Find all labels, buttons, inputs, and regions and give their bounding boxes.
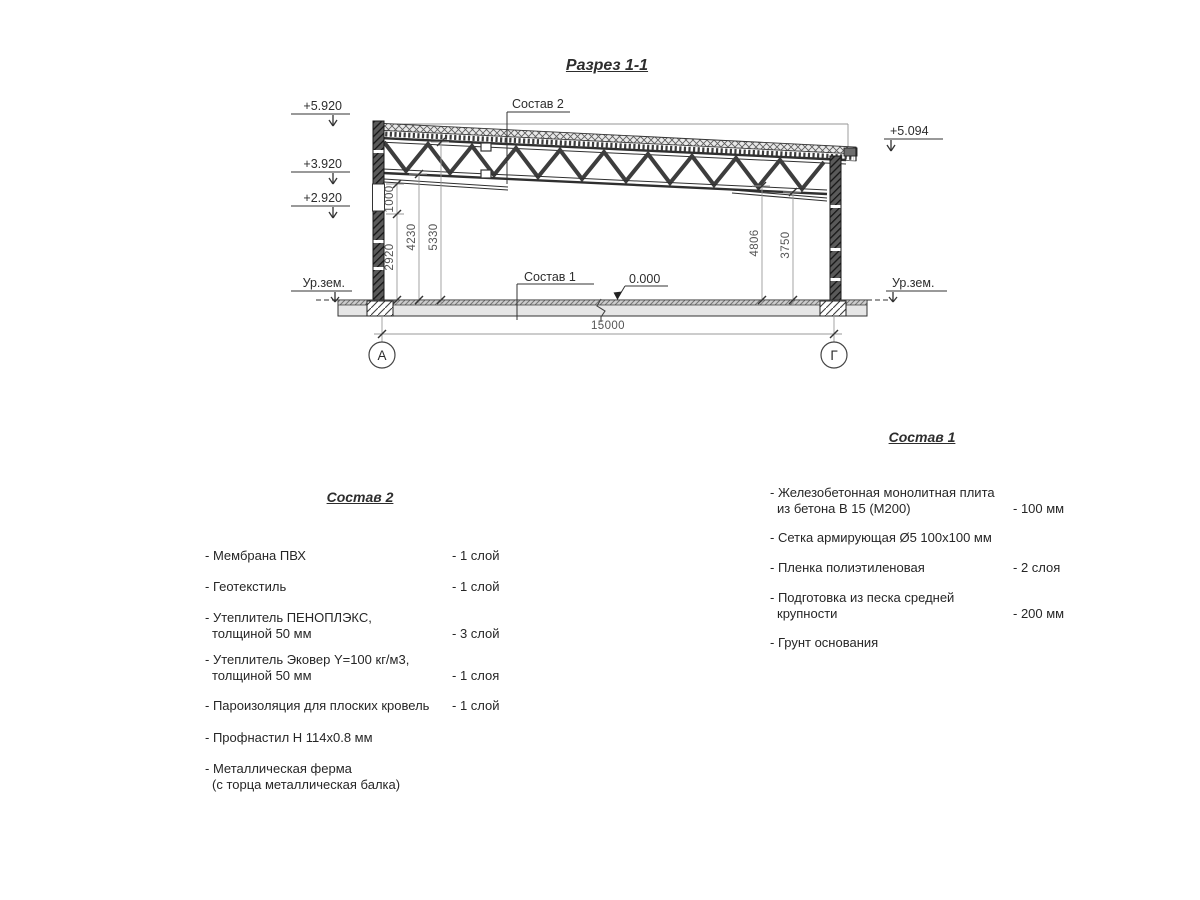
sostav2-heading: Состав 2 (205, 489, 515, 505)
truss-gusset-plate (481, 143, 491, 151)
axis-bubble-a: А (369, 342, 395, 368)
svg-text:+3.920: +3.920 (303, 157, 342, 171)
sostav1-list: - Железобетонная монолитная плита из бет… (770, 485, 1170, 651)
list-item: - Грунт основания (770, 635, 1170, 651)
truss-gusset-plate (481, 170, 491, 178)
drawing-sheet: Разрез 1-1 (0, 0, 1200, 900)
section-title: Разрез 1-1 (457, 57, 757, 75)
svg-text:Состав 2: Состав 2 (512, 97, 564, 111)
list-item: - Пленка полиэтиленовая - 2 слоя (770, 560, 1170, 576)
wall-left-opening (373, 184, 385, 211)
svg-text:4806: 4806 (749, 229, 761, 256)
svg-text:2920: 2920 (384, 243, 396, 270)
ground-level-label-left: Ур.зем. (291, 276, 352, 302)
svg-text:0.000: 0.000 (629, 272, 660, 286)
list-item: - Утеплитель Эковер Y=100 кг/м3, толщино… (205, 652, 625, 684)
floor-slab (316, 299, 893, 322)
wall-right (830, 156, 841, 300)
roof-fascia (844, 148, 857, 156)
wall-left (373, 121, 385, 300)
ground-level-label-right: Ур.зем. (886, 276, 947, 302)
elevation-mark-2920: +2.920 (291, 191, 350, 218)
list-item: - Железобетонная монолитная плита из бет… (770, 485, 1170, 517)
foundation-left (367, 301, 393, 316)
elevation-mark-3920: +3.920 (291, 157, 350, 184)
list-item: - Профнастил Н 114х0.8 мм (205, 730, 625, 746)
svg-text:Состав 1: Состав 1 (524, 270, 576, 284)
svg-text:А: А (377, 348, 386, 363)
list-item: - Геотекстиль - 1 слой (205, 579, 625, 595)
sostav1-heading: Состав 1 (770, 429, 1074, 445)
svg-text:Ур.зем.: Ур.зем. (892, 276, 934, 290)
svg-text:Ур.зем.: Ур.зем. (303, 276, 345, 290)
list-item: - Утеплитель ПЕНОПЛЭКС, толщиной 50 мм -… (205, 610, 625, 642)
svg-text:+2.920: +2.920 (303, 191, 342, 205)
svg-text:3750: 3750 (780, 231, 792, 258)
list-item: - Сетка армирующая Ø5 100х100 мм (770, 530, 1170, 546)
svg-text:+5.094: +5.094 (890, 124, 929, 138)
svg-text:1000: 1000 (384, 185, 396, 212)
elevation-mark-5920: +5.920 (291, 99, 350, 126)
list-item: - Металлическая ферма (с торца металличе… (205, 761, 625, 793)
svg-text:Г: Г (830, 348, 838, 363)
list-item: - Подготовка из песка средней крупности … (770, 590, 1170, 622)
svg-text:5330: 5330 (428, 223, 440, 250)
span-dimension: 15000 (374, 316, 842, 342)
list-item: - Пароизоляция для плоских кровель - 1 с… (205, 698, 625, 714)
svg-text:15000: 15000 (591, 320, 625, 332)
svg-text:4230: 4230 (406, 223, 418, 250)
elevation-mark-5094: +5.094 (884, 124, 943, 151)
sostav2-list: - Мембрана ПВХ - 1 слой - Геотекстиль - … (205, 548, 625, 793)
svg-text:+5.920: +5.920 (303, 99, 342, 113)
axis-bubble-g: Г (821, 342, 847, 368)
list-item: - Мембрана ПВХ - 1 слой (205, 548, 625, 564)
foundation-right (820, 301, 846, 316)
zero-level-label: 0.000 (614, 272, 669, 300)
